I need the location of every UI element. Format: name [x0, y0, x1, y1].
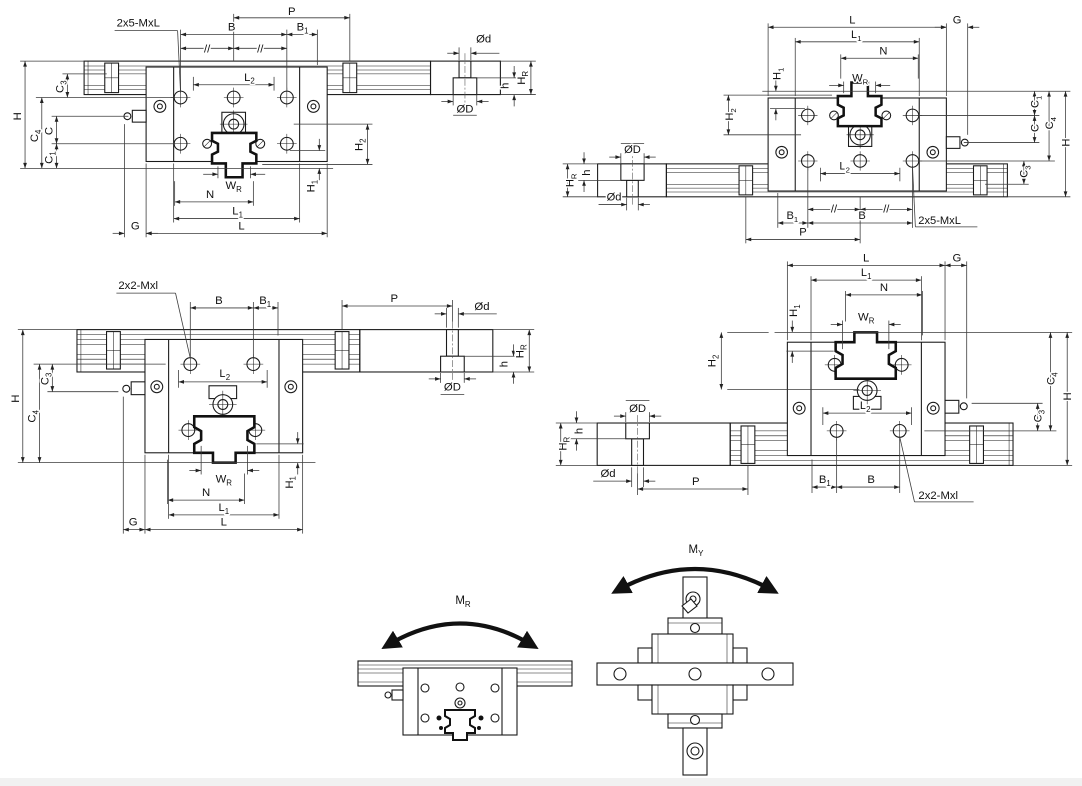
dim-label-od-small: Ød	[600, 468, 615, 480]
dim-label-h-depth: h	[499, 361, 511, 367]
dim-label-g: G	[131, 220, 140, 232]
dim-label-n: N	[202, 487, 210, 499]
top-left-assembly-diagram: P B B1 // // 2x5-MxL L2 WR N L1 L G H C4…	[8, 6, 545, 254]
screw-callout: 2x2-Mxl	[918, 490, 958, 502]
dim-label-hr: HR	[564, 173, 578, 187]
carriage-top-view	[597, 618, 793, 728]
rail-column-bottom	[683, 728, 707, 775]
screw-callout: 2x5-MxL	[918, 215, 961, 227]
dim-label-h-depth: h	[499, 83, 511, 89]
moment-my-diagram: MY	[592, 533, 827, 778]
dim-label-od-big: ØD	[456, 103, 473, 115]
dim-label-g: G	[953, 14, 962, 26]
dim-label-h-depth: h	[573, 428, 585, 434]
dim-label-c4: C4	[27, 409, 41, 422]
parallelism-symbol: //	[204, 43, 211, 55]
dim-label-h1: H1	[788, 304, 802, 317]
dim-label-p: P	[692, 476, 700, 488]
dim-label-b: B	[228, 22, 236, 34]
dim-label-h2: H2	[706, 355, 720, 368]
moment-label-my: MY	[689, 544, 705, 558]
dim-label-hr: HR	[558, 436, 572, 450]
dim-label-l: L	[238, 220, 244, 232]
dim-label-h2: H2	[354, 138, 368, 151]
dim-label-c1: C1	[44, 151, 58, 164]
dim-label-h2: H2	[724, 108, 738, 120]
dim-label-od-big: ØD	[624, 144, 641, 156]
dim-label-b1: B1	[819, 474, 831, 488]
dim-label-h1: H1	[305, 180, 319, 193]
moment-label-mr: MR	[455, 595, 471, 609]
dim-label-l1: L1	[232, 206, 243, 220]
dim-label-c3: C3	[54, 80, 68, 93]
dim-label-od-big: ØD	[444, 382, 461, 394]
dim-label-c3: C3	[1019, 165, 1033, 177]
dim-label-b1: B1	[297, 22, 309, 36]
dim-label-l: L	[863, 252, 869, 264]
dim-label-wr: WR	[858, 312, 875, 326]
grease-nipple-side	[392, 690, 403, 700]
dim-label-p: P	[799, 227, 806, 239]
dim-label-b: B	[215, 295, 223, 307]
dim-label-od-small: Ød	[607, 192, 622, 204]
screw-callout: 2x2-Mxl	[118, 280, 158, 292]
dim-label-c1: C1	[1029, 96, 1043, 108]
dim-label-wr: WR	[226, 180, 243, 194]
dim-label-g: G	[952, 252, 961, 264]
dim-label-l1: L1	[861, 267, 872, 281]
dim-label-n: N	[880, 282, 888, 294]
technical-drawing-sheet: P B B1 // // 2x5-MxL L2 WR N L1 L G H C4…	[0, 0, 1082, 786]
dim-label-h-height: H	[1060, 139, 1072, 147]
dim-label-l: L	[221, 517, 227, 529]
moment-arc-arrow	[388, 624, 532, 646]
dim-label-od-small: Ød	[474, 301, 489, 313]
dim-label-c4: C4	[29, 129, 43, 142]
dim-label-b: B	[858, 210, 865, 222]
dim-label-h1: H1	[284, 476, 298, 489]
dim-label-h-height: H	[10, 394, 22, 402]
dim-label-c: C	[44, 127, 56, 135]
dim-label-wr: WR	[852, 73, 869, 87]
dim-label-h-depth: h	[581, 170, 593, 176]
carriage-front-view	[385, 668, 517, 740]
parallelism-symbol: //	[831, 203, 838, 215]
parallelism-symbol: //	[883, 203, 890, 215]
dim-label-p: P	[390, 293, 398, 305]
dim-label-h-height: H	[1062, 392, 1074, 400]
dim-label-n: N	[879, 45, 887, 57]
dim-label-c4: C4	[1045, 372, 1059, 385]
dim-label-n: N	[206, 189, 214, 201]
parallelism-symbol: //	[257, 43, 264, 55]
dim-label-h1: H1	[772, 68, 786, 80]
dim-label-c3: C3	[1033, 409, 1047, 422]
dim-label-b: B	[867, 474, 875, 486]
dim-label-p: P	[288, 6, 296, 18]
footer-divider-bar	[0, 778, 1082, 786]
dim-label-b1: B1	[259, 295, 271, 309]
dim-label-od-small: Ød	[476, 33, 491, 45]
dim-label-c: C	[1029, 124, 1041, 132]
dim-label-h-height: H	[12, 112, 24, 120]
dim-label-g: G	[129, 517, 138, 529]
middle-right-assembly-diagram: 2x2-Mxl B B1 P Ød L2 ØD HR h WR N L1 L G…	[542, 252, 1082, 529]
dim-label-c3: C3	[39, 372, 53, 385]
dim-label-b1: B1	[786, 210, 798, 224]
dim-label-c4: C4	[1044, 116, 1058, 129]
dim-label-hr: HR	[514, 344, 528, 358]
dim-label-hr: HR	[516, 71, 530, 85]
dim-label-od-big: ØD	[629, 403, 646, 415]
dim-label-l1: L1	[851, 29, 862, 43]
top-right-assembly-diagram: P B B1 // // 2x5-MxL L2 WR N L1 L G H C4…	[554, 6, 1082, 252]
moment-mr-diagram: MR	[350, 552, 580, 747]
dim-label-l: L	[849, 14, 855, 26]
screw-callout: 2x5-MxL	[117, 18, 160, 30]
dim-label-l1: L1	[218, 502, 229, 516]
dim-label-wr: WR	[216, 473, 233, 487]
middle-left-assembly-diagram: 2x2-Mxl B B1 P Ød L2 ØD HR h WR N L1 L G…	[8, 266, 548, 543]
